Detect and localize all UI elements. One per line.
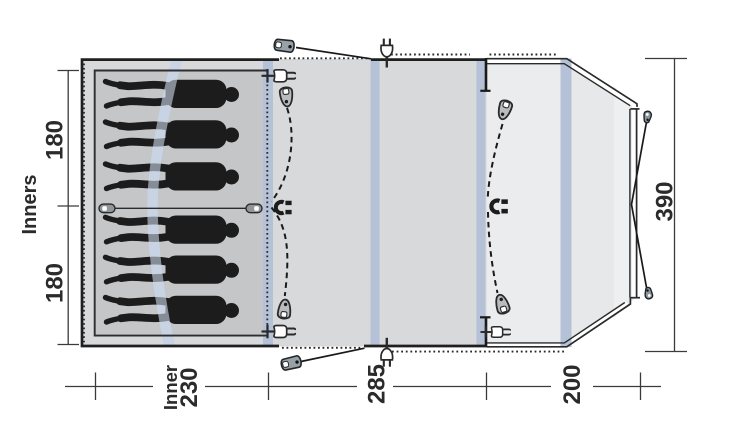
svg-text:390: 390 — [652, 181, 679, 221]
svg-text:180: 180 — [42, 263, 69, 303]
svg-text:285: 285 — [364, 364, 391, 404]
svg-text:180: 180 — [42, 120, 69, 160]
svg-text:200: 200 — [559, 364, 586, 404]
svg-text:230: 230 — [176, 367, 203, 407]
svg-text:Inners: Inners — [19, 174, 41, 234]
